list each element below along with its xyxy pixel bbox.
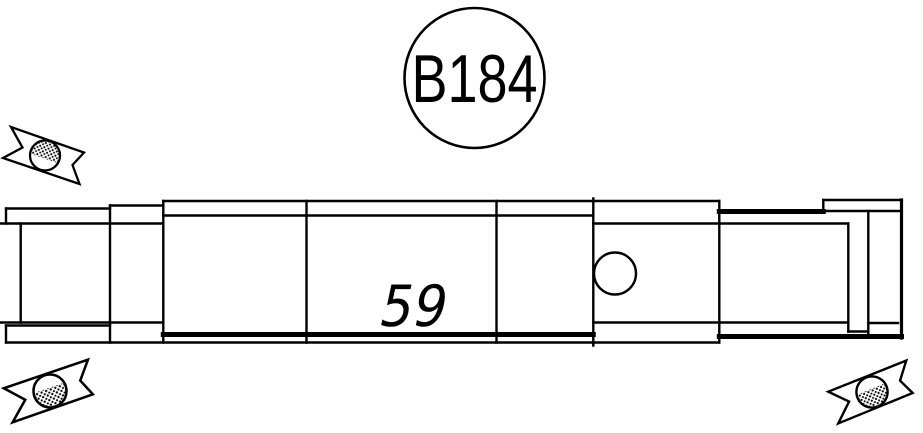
part-balloon: B184 <box>405 8 545 148</box>
part-label: B184 <box>412 41 538 117</box>
drawing-canvas: B184 59 <box>0 0 923 433</box>
cad-drawing: B184 59 <box>0 0 923 433</box>
